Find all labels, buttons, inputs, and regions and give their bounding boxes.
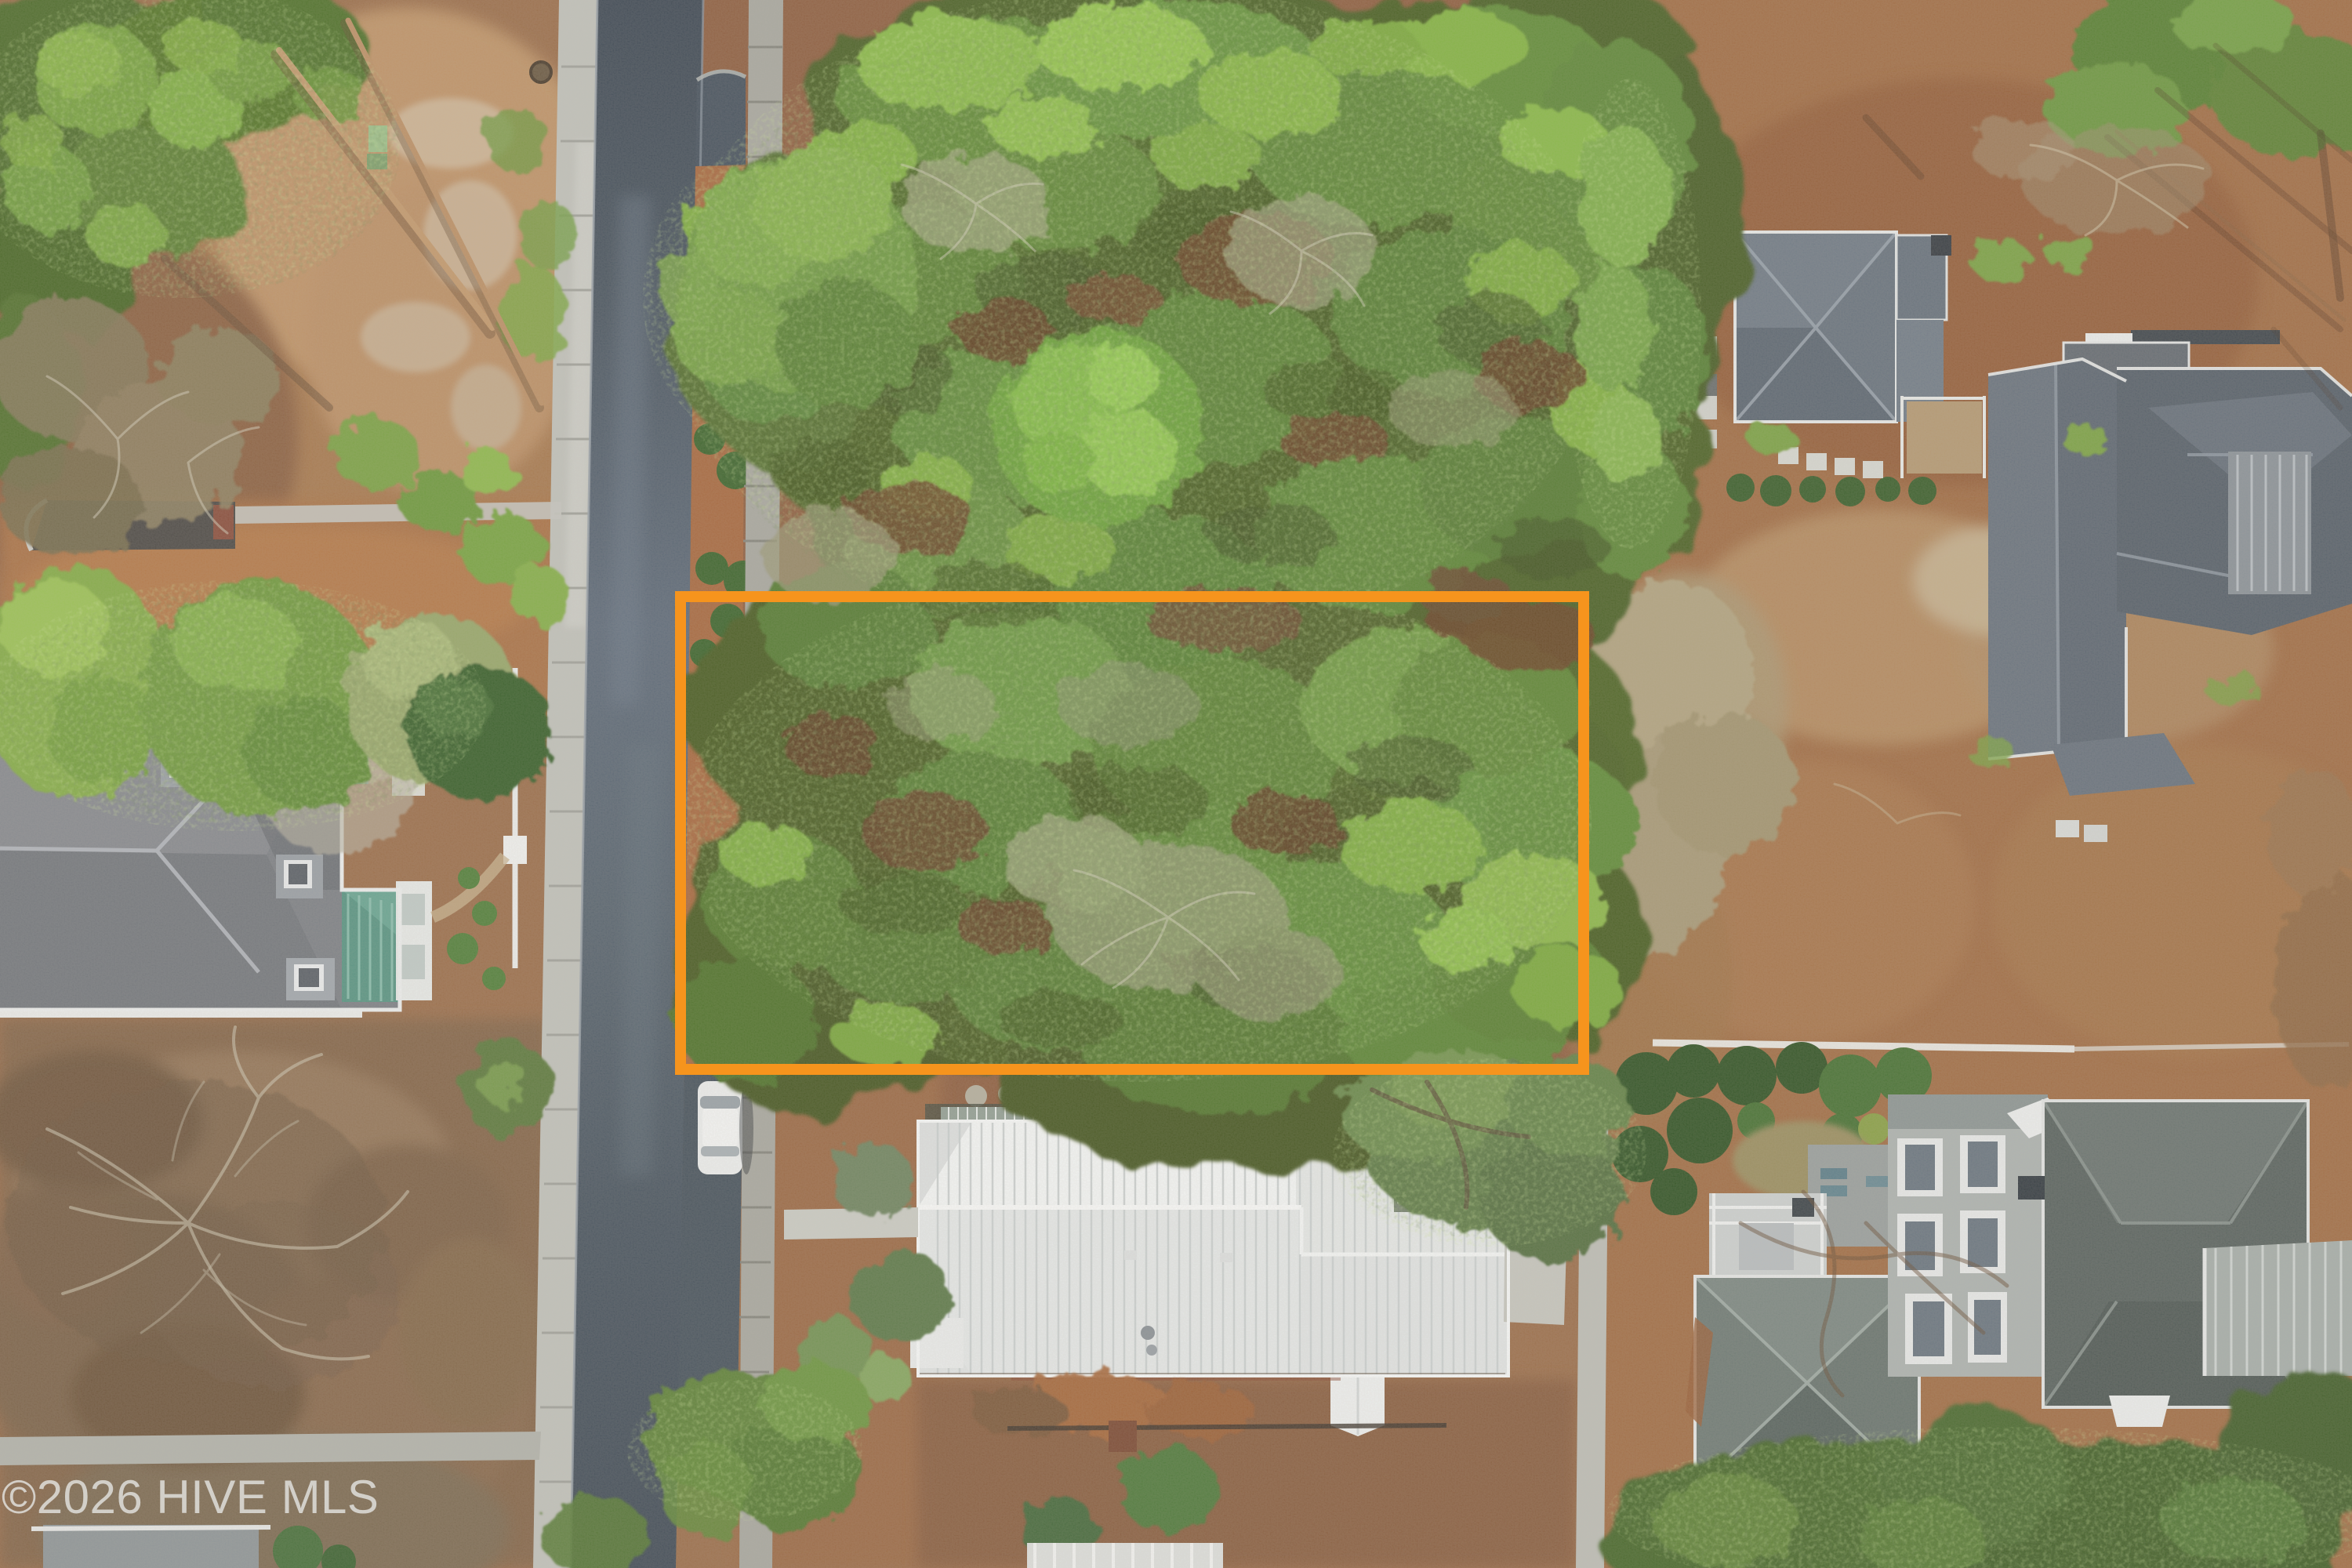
svg-text:©2026 HIVE MLS: ©2026 HIVE MLS [2,1471,379,1523]
